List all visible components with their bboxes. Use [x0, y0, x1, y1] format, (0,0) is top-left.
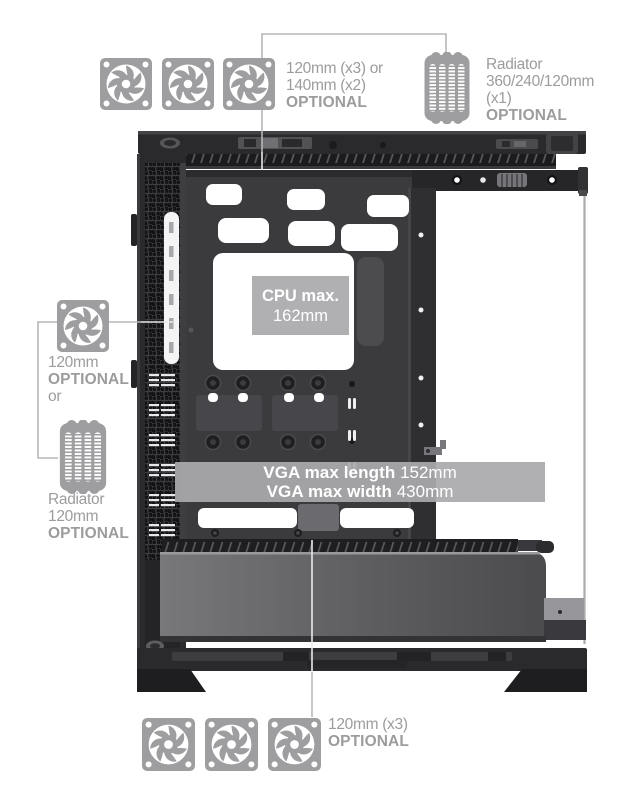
radiator-icon — [58, 420, 108, 494]
pc-case-spec-diagram: 120mm (x3) or 140mm (x2) OPTIONAL Radiat… — [0, 0, 640, 807]
label-line: Radiator — [48, 491, 129, 508]
vga-length-label: VGA max length — [263, 463, 395, 482]
cpu-max-value: 162mm — [252, 306, 349, 326]
side-fan-label: 120mm OPTIONAL or — [48, 354, 129, 405]
label-line: OPTIONAL — [486, 107, 594, 124]
top-fans-label: 120mm (x3) or 140mm (x2) OPTIONAL — [286, 60, 383, 111]
label-line: OPTIONAL — [48, 371, 129, 388]
label-line: 120mm (x3) or — [286, 60, 383, 77]
fan-icon — [57, 300, 109, 352]
label-line: 140mm (x2) — [286, 77, 383, 94]
radiator-icon — [424, 52, 470, 124]
label-line: 120mm — [48, 354, 129, 371]
fan-icon — [162, 58, 214, 110]
vga-length-value: 152mm — [400, 463, 457, 482]
fan-icon — [223, 58, 275, 110]
bottom-fans-label: 120mm (x3) OPTIONAL — [328, 716, 409, 750]
label-line: OPTIONAL — [48, 525, 129, 542]
label-line: Radiator — [486, 56, 594, 73]
label-line: 360/240/120mm — [486, 73, 594, 90]
fan-icon — [142, 718, 195, 771]
vga-length-row: VGA max length 152mm — [263, 463, 457, 482]
fan-icon — [268, 718, 321, 771]
cpu-max-title: CPU max. — [252, 286, 349, 306]
cpu-max-badge: CPU max. 162mm — [252, 276, 349, 335]
label-line: or — [48, 388, 129, 405]
vga-width-value: 430mm — [397, 482, 454, 501]
label-line: (x1) — [486, 90, 594, 107]
vga-max-badge: VGA max length 152mm VGA max width 430mm — [175, 462, 545, 502]
label-line: 120mm — [48, 508, 129, 525]
side-radiator-label: Radiator 120mm OPTIONAL — [48, 491, 129, 542]
label-line: OPTIONAL — [286, 94, 383, 111]
fan-icon — [100, 58, 152, 110]
vga-width-label: VGA max width — [267, 482, 392, 501]
label-line: 120mm (x3) — [328, 716, 409, 733]
fan-icon — [205, 718, 258, 771]
top-radiator-label: Radiator 360/240/120mm (x1) OPTIONAL — [486, 56, 594, 124]
vga-width-row: VGA max width 430mm — [267, 482, 454, 501]
label-line: OPTIONAL — [328, 733, 409, 750]
